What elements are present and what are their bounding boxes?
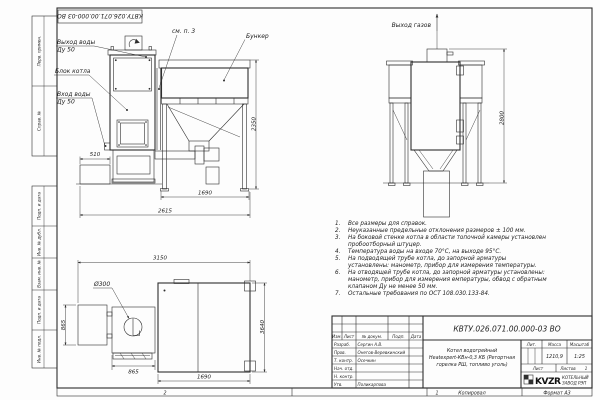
role-utv: Утв. — [334, 382, 343, 387]
dim-bunker-width-1690: 1690 — [198, 191, 212, 197]
role-razrab: Разраб. — [334, 342, 350, 347]
label-bunker: Бункер — [246, 33, 269, 40]
note-item: 3. На боковой стенке котла в области топ… — [335, 235, 549, 249]
dim-total-height-2800: 2800 — [500, 111, 506, 125]
note-item: 2. Неуказанные предельные отклонения раз… — [335, 228, 549, 235]
scale-value: 1:25 — [574, 354, 585, 360]
product-name-line2: Heatexpert-КВн-0,3 КБ (Ретортная — [429, 355, 515, 361]
stamp-podp-data-1: Подп. и дата — [37, 192, 42, 220]
company-line2: ЗАВОД РЭП — [562, 381, 586, 386]
note-number: 5. — [335, 256, 348, 270]
name-razrab: Сергин А.В. — [358, 342, 383, 347]
sheet-label: Лист — [532, 366, 544, 371]
stamp-inv-podl: Инв. № подл. — [37, 335, 42, 363]
label-water-in-2: Ду 50 — [56, 99, 75, 106]
dim-plan-depth-3640: 3640 — [260, 320, 266, 334]
note-text: На боковой стенке котла в области топочн… — [348, 235, 549, 249]
mass-value: 1210,9 — [546, 354, 563, 360]
note-number: 6. — [335, 270, 348, 291]
logo-checker-icon — [524, 375, 529, 380]
note-number: 4. — [335, 249, 348, 256]
dim-plan-total-3150: 3150 — [153, 256, 167, 262]
dim-plan-left-865: 865 — [61, 319, 67, 330]
label-see-note-3: см. п. 3 — [172, 28, 195, 35]
prop-mass: Масса — [548, 342, 562, 347]
rotated-doc-number: КВТУ.026.071.00.000-03 ВО — [57, 12, 143, 19]
note-item: 5. На подводящей трубе котла, до запорно… — [335, 256, 549, 270]
note-number: 7. — [335, 291, 348, 298]
note-text: Остальные требования по ОСТ 108.030.133-… — [348, 291, 549, 298]
note-text: Температура воды на входе 70°С, на выход… — [348, 249, 549, 256]
prop-lit: Лит. — [526, 342, 536, 347]
side-view: Выход газов 2800 — [383, 14, 507, 217]
zone-mark-1: 1 — [435, 391, 438, 397]
dim-bunker-height-2350: 2350 — [252, 117, 258, 131]
label-boiler-block: Блок котла — [55, 68, 91, 75]
note-text: Все размеры для справок. — [348, 221, 549, 228]
stamp-inv-dubl: Инв. № дубл. — [37, 228, 42, 256]
role-nachotd: Нач. отд. — [334, 366, 354, 371]
label-water-out-1: Выход воды — [57, 39, 95, 46]
copied-label: Копировал — [458, 391, 485, 397]
note-item: 4. Температура воды на входе 70°С, на вы… — [335, 249, 549, 256]
role-tkontr: Т. контр. — [334, 358, 353, 363]
format-label: Формат А3 — [543, 391, 570, 397]
left-stamp-column: Перв. примен. Справ. № Подп. и дата Инв.… — [32, 16, 57, 368]
note-item: 1. Все размеры для справок. — [335, 221, 549, 228]
notes-list: 1. Все размеры для справок. 2. Неуказанн… — [335, 221, 549, 298]
label-water-out-2: Ду 50 — [56, 47, 75, 54]
note-text: На отводящей трубе котла, до запорной ар… — [348, 270, 549, 291]
product-name-line3: горелка РШ, топливо уголь) — [436, 362, 507, 368]
col-list: Лист — [343, 334, 355, 339]
label-gas-out: Выход газов — [392, 22, 432, 29]
note-item: 6. На отводящей трубе котла, до запорной… — [335, 270, 549, 291]
note-text: Неуказанные предельные отклонения размер… — [348, 228, 549, 235]
product-name-line1: Котел водогрейный — [447, 348, 497, 354]
stamp-vzam-inv: Взам. инв. № — [37, 259, 42, 288]
stamp-sprav-n: Справ. № — [37, 110, 42, 131]
role-nkontr: Н. контр. — [334, 374, 354, 379]
drawing-canvas: 2 1 Копировал Формат А3 Перв. примен. Сп… — [0, 0, 600, 400]
label-hole-dia300: Ø300 — [93, 281, 110, 288]
name-utv: Поликарпова — [358, 382, 387, 387]
prop-scale: Масштаб — [570, 342, 590, 347]
col-izm: Изм. — [332, 334, 342, 339]
company-line1: КОТЕЛЬНЫЙ — [562, 375, 589, 380]
col-docnum: № докум. — [361, 334, 382, 339]
drawing-sheet: { "sheet": { "doc_number": "КВТУ.026.071… — [0, 0, 600, 400]
front-view: Выход воды Ду 50 Блок котла Вход воды Ду… — [54, 28, 269, 218]
note-number: 2. — [335, 228, 348, 235]
sheet-frame: 2 1 Копировал Формат А3 — [57, 8, 592, 397]
name-tkontr: Осечкин — [358, 358, 377, 363]
dim-plan-firebox-865: 865 — [128, 370, 139, 376]
sheets-label: Листов — [559, 366, 576, 371]
col-data: Дата — [410, 334, 422, 339]
label-water-in-1: Вход воды — [57, 91, 91, 98]
role-prov: Пров. — [334, 350, 346, 355]
col-podp: Подп. — [392, 334, 404, 339]
rotated-docnumber-box: КВТУ.026.071.00.000-03 ВО — [57, 10, 143, 23]
dim-total-width-2615: 2615 — [158, 209, 172, 215]
zone-mark-2: 2 — [163, 391, 166, 397]
note-number: 3. — [335, 235, 348, 249]
sheets-value: 1 — [585, 366, 588, 371]
logo-kvzr: KVZR — [535, 377, 561, 387]
stamp-perv-primen: Перв. примен. — [37, 36, 42, 67]
title-block: КВТУ.026.071.00.000-03 ВО Котел водогрей… — [332, 316, 592, 388]
dim-foundation-510: 510 — [90, 152, 101, 158]
note-text: На подводящей трубе котла, до запорной а… — [348, 256, 549, 270]
dim-plan-bunker-1690: 1690 — [197, 375, 211, 381]
name-prov: Онегов-Веревкинский — [358, 350, 406, 355]
note-item: 7. Остальные требования по ОСТ 108.030.1… — [335, 291, 549, 298]
plan-view: Ø300 3150 865 865 1690 3640 — [61, 256, 267, 385]
titleblock-doc-number: КВТУ.026.071.00.000-03 ВО — [453, 325, 560, 334]
stamp-podp-data-2: Подп. и дата — [37, 296, 42, 324]
note-number: 1. — [335, 221, 348, 228]
